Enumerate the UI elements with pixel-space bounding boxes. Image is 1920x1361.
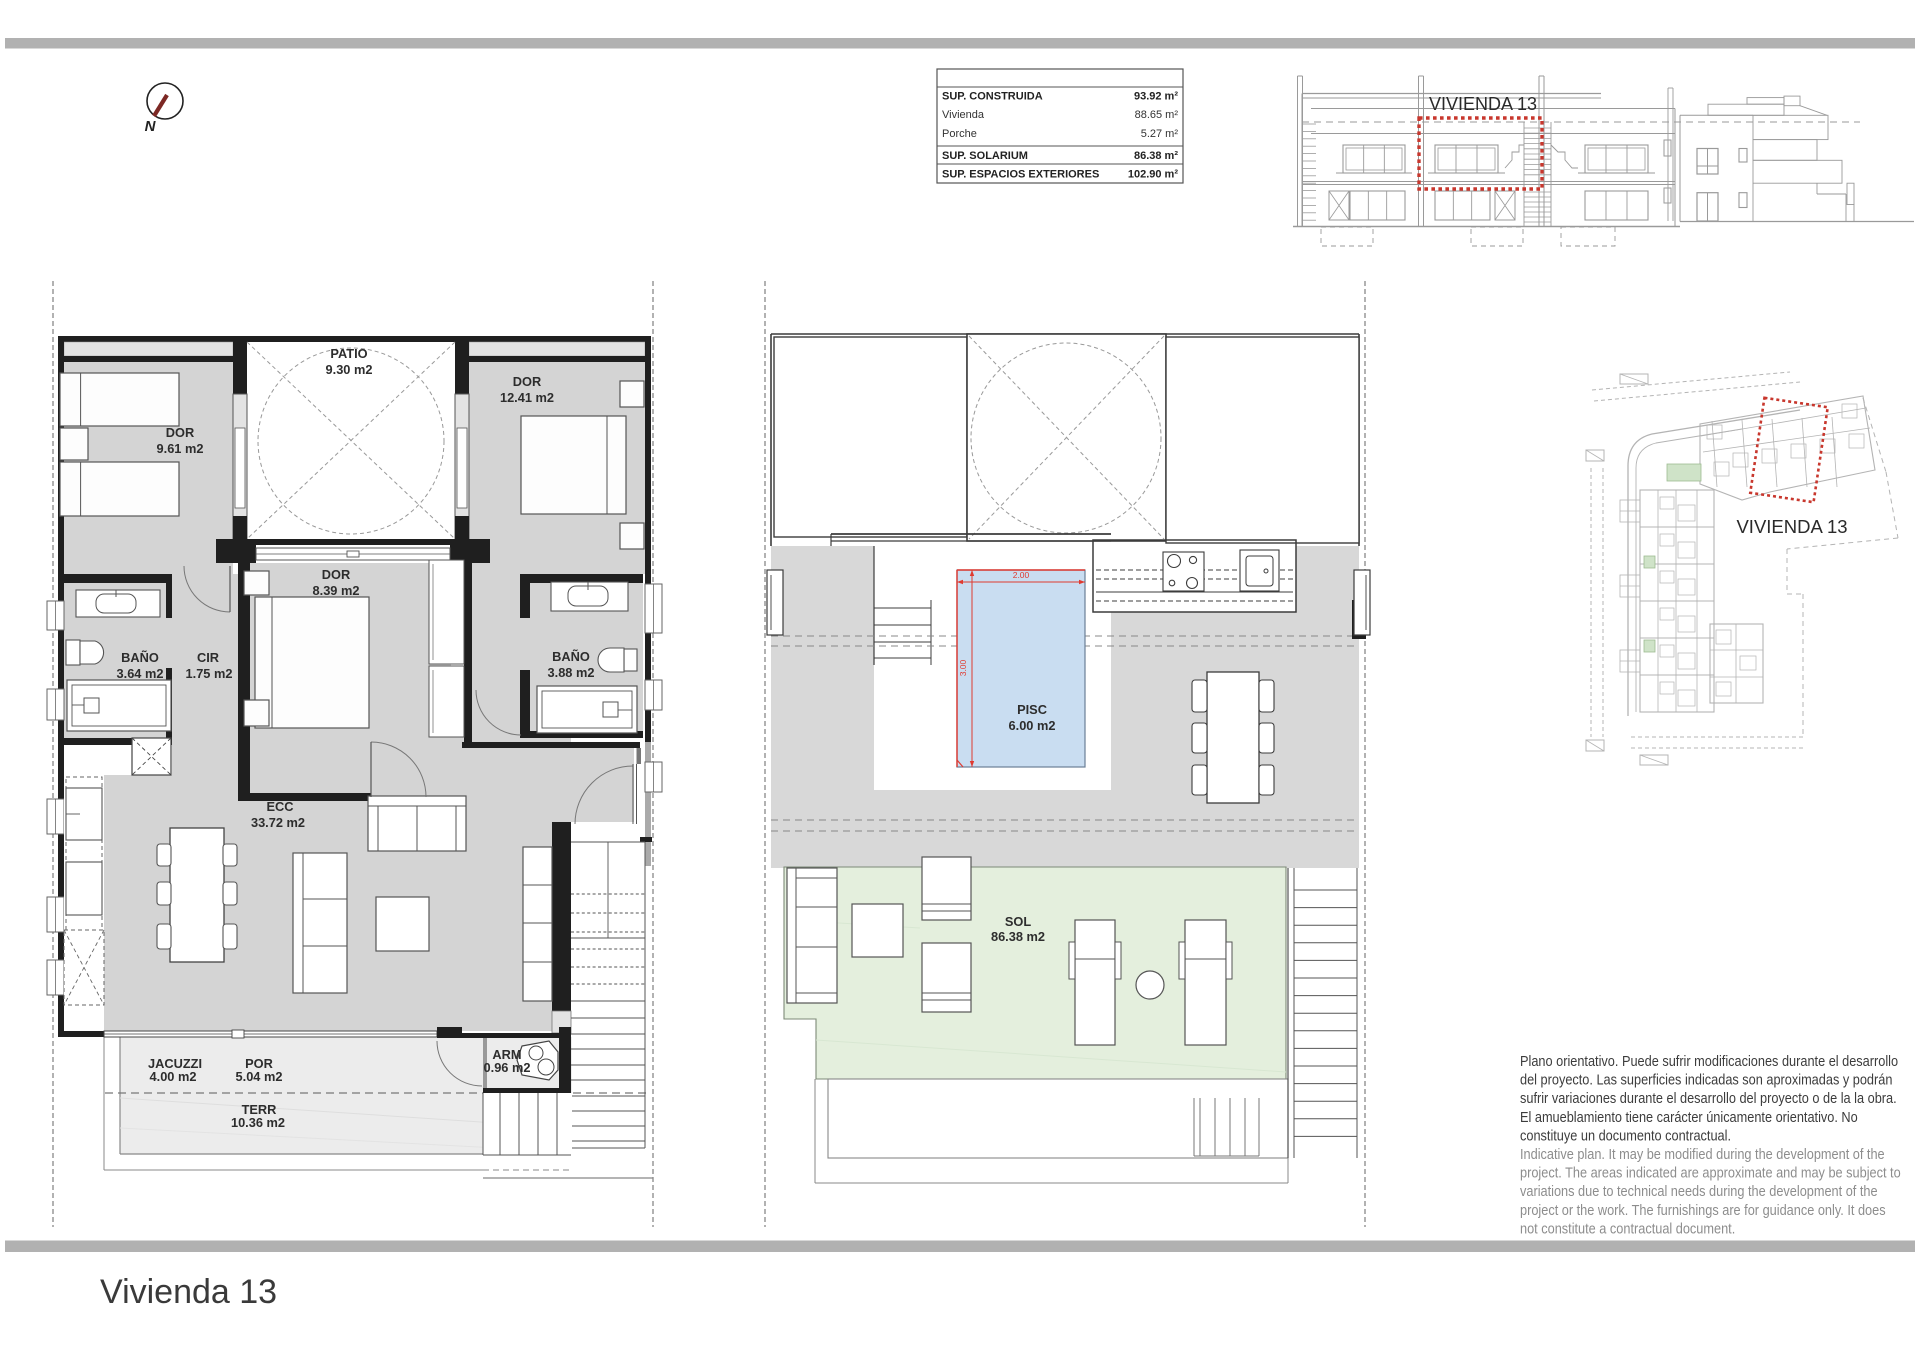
- svg-text:El amueblamiento tiene carácte: El amueblamiento tiene carácter únicamen…: [1520, 1108, 1858, 1125]
- svg-text:33.72 m2: 33.72 m2: [251, 815, 305, 830]
- svg-text:0.96 m2: 0.96 m2: [484, 1060, 531, 1075]
- svg-text:project. The areas indicated a: project. The areas indicated are approxi…: [1520, 1164, 1901, 1181]
- svg-text:PATIO: PATIO: [330, 346, 367, 361]
- svg-text:SUP. ESPACIOS EXTERIORES: SUP. ESPACIOS EXTERIORES: [942, 169, 1099, 181]
- svg-text:project or the work. The furni: project or the work. The furnishings are…: [1520, 1201, 1886, 1218]
- svg-text:Plano orientativo. Puede sufri: Plano orientativo. Puede sufrir modifica…: [1520, 1052, 1898, 1069]
- svg-text:VIVIENDA 13: VIVIENDA 13: [1429, 94, 1537, 114]
- svg-text:BAÑO: BAÑO: [121, 650, 159, 665]
- svg-text:BAÑO: BAÑO: [552, 649, 590, 664]
- svg-text:constituye un documento contra: constituye un documento contractual.: [1520, 1126, 1731, 1143]
- svg-text:8.39 m2: 8.39 m2: [313, 583, 360, 598]
- svg-text:3.88 m2: 3.88 m2: [548, 665, 595, 680]
- svg-text:SUP. CONSTRUIDA: SUP. CONSTRUIDA: [942, 91, 1043, 103]
- svg-text:DOR: DOR: [513, 374, 541, 389]
- svg-text:SUP. SOLARIUM: SUP. SOLARIUM: [942, 150, 1028, 162]
- svg-text:9.61 m2: 9.61 m2: [157, 441, 204, 456]
- svg-text:93.92 m²: 93.92 m²: [1134, 91, 1178, 103]
- svg-text:10.36 m2: 10.36 m2: [231, 1115, 285, 1130]
- svg-text:PISC: PISC: [1017, 702, 1047, 717]
- svg-text:sufrir variaciones durante el: sufrir variaciones durante el desarrollo…: [1520, 1089, 1897, 1106]
- svg-text:Vivienda: Vivienda: [942, 109, 985, 121]
- svg-text:Vivienda 13: Vivienda 13: [100, 1273, 277, 1311]
- svg-text:1.75 m2: 1.75 m2: [186, 666, 233, 681]
- svg-text:2.00: 2.00: [1013, 570, 1030, 580]
- svg-text:9.30 m2: 9.30 m2: [326, 362, 373, 377]
- svg-text:6.00 m2: 6.00 m2: [1009, 718, 1056, 733]
- svg-text:3.64 m2: 3.64 m2: [117, 666, 164, 681]
- svg-text:SOL: SOL: [1005, 914, 1031, 929]
- svg-text:102.90 m²: 102.90 m²: [1128, 169, 1178, 181]
- svg-text:3.00: 3.00: [958, 659, 968, 676]
- svg-text:VIVIENDA 13: VIVIENDA 13: [1736, 516, 1847, 537]
- svg-text:DOR: DOR: [166, 425, 194, 440]
- svg-text:12.41 m2: 12.41 m2: [500, 390, 554, 405]
- svg-text:ECC: ECC: [266, 799, 293, 814]
- svg-text:86.38 m²: 86.38 m²: [1134, 150, 1178, 162]
- svg-text:5.27 m²: 5.27 m²: [1141, 128, 1179, 140]
- svg-text:Porche: Porche: [942, 128, 977, 140]
- svg-text:del proyecto. Las superficies: del proyecto. Las superficies indicadas …: [1520, 1071, 1892, 1088]
- svg-text:88.65 m²: 88.65 m²: [1135, 109, 1179, 121]
- svg-text:Indicative plan. It may be mod: Indicative plan. It may be modified duri…: [1520, 1145, 1885, 1162]
- svg-text:DOR: DOR: [322, 567, 350, 582]
- svg-text:variations due to technical ne: variations due to technical needs during…: [1520, 1182, 1878, 1199]
- svg-text:4.00 m2: 4.00 m2: [150, 1069, 197, 1084]
- svg-text:not constitute a contractual d: not constitute a contractual document.: [1520, 1219, 1735, 1236]
- svg-text:CIR: CIR: [197, 650, 219, 665]
- svg-text:N: N: [145, 118, 157, 135]
- svg-text:5.04 m2: 5.04 m2: [236, 1069, 283, 1084]
- svg-text:86.38 m2: 86.38 m2: [991, 929, 1045, 944]
